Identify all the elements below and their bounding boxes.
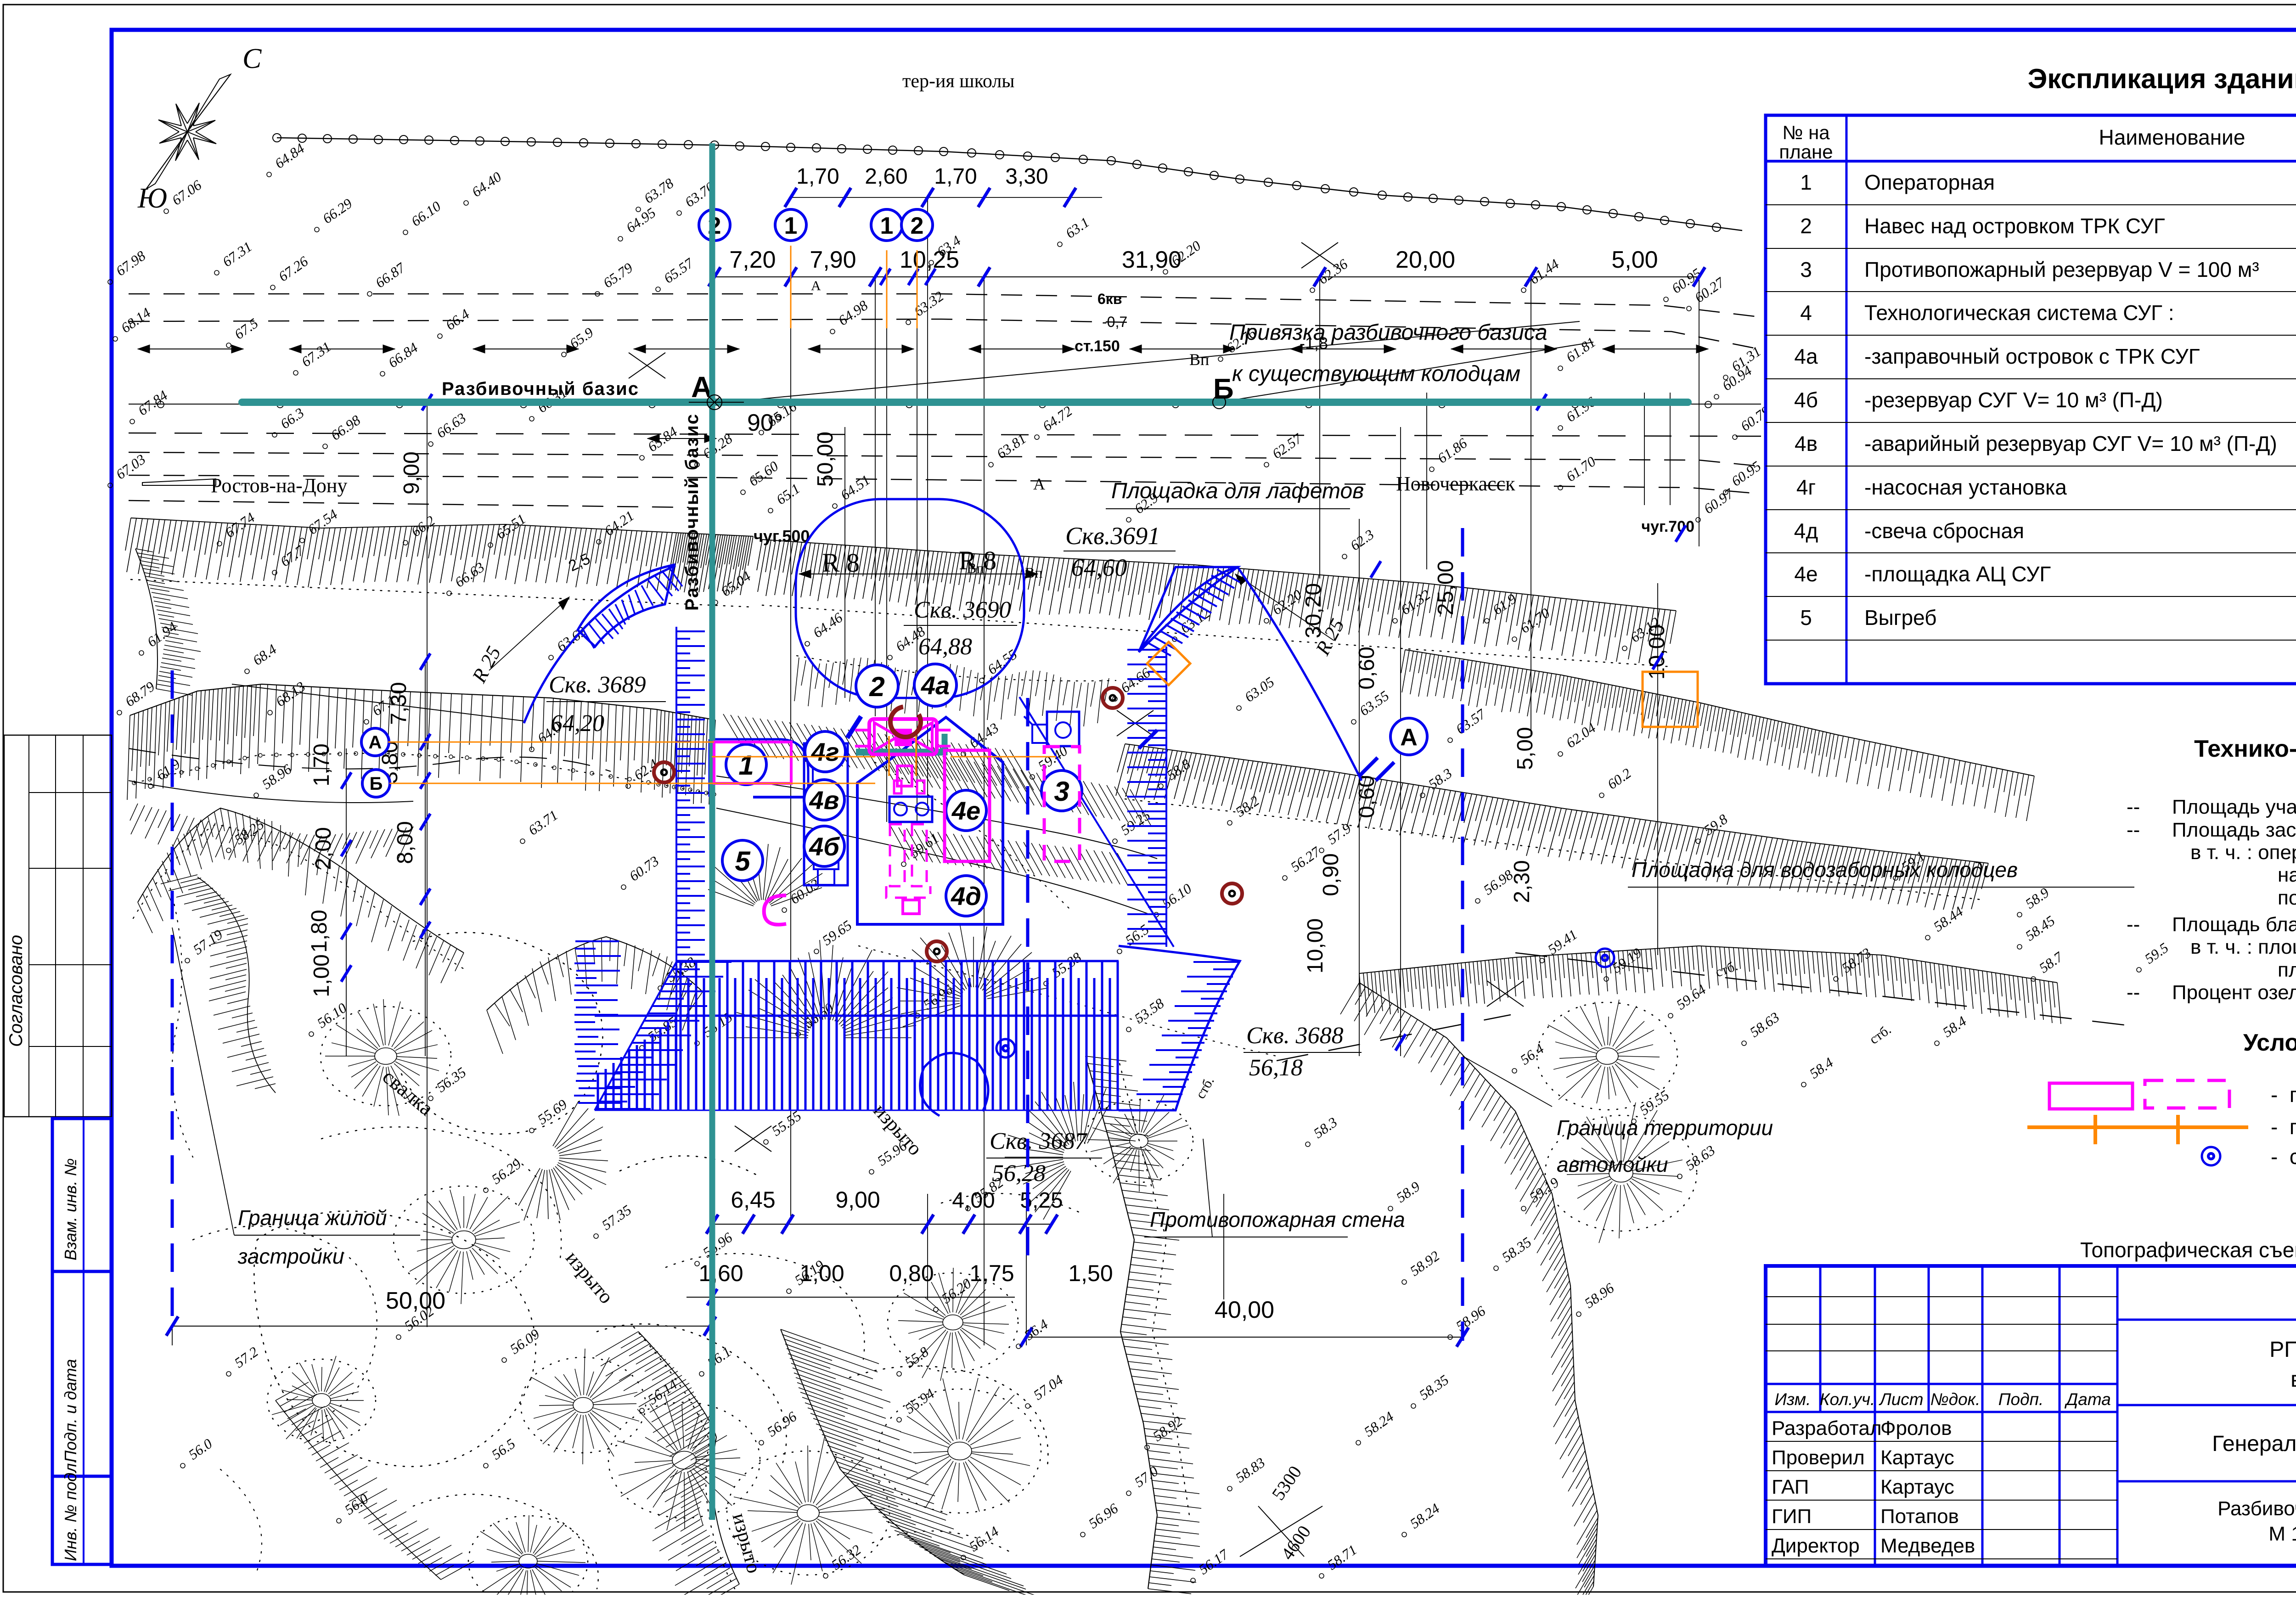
svg-text:4а: 4а: [1794, 344, 1818, 368]
svg-text:0,60: 0,60: [1355, 775, 1379, 818]
svg-text:Медведев: Медведев: [1880, 1535, 1975, 1557]
svg-text:Операторная: Операторная: [1864, 170, 1995, 194]
svg-text:6кв: 6кв: [1097, 291, 1122, 307]
svg-text:4а: 4а: [921, 671, 950, 700]
svg-text:Б: Б: [370, 774, 383, 794]
svg-text:Разбивочный план.: Разбивочный план.: [2217, 1497, 2296, 1520]
svg-text:5: 5: [735, 846, 751, 877]
svg-text:Разработал: Разработал: [1772, 1417, 1882, 1440]
svg-text:Навес над островком ТРК СУГ: Навес над островком ТРК СУГ: [1864, 214, 2165, 238]
svg-text:плане: плане: [1779, 141, 1833, 163]
svg-text:2,00: 2,00: [311, 827, 336, 870]
svg-text:№ на: № на: [1782, 122, 1830, 143]
svg-text:-площадка АЦ СУГ: -площадка АЦ СУГ: [1864, 562, 2051, 586]
svg-text:0,90: 0,90: [1319, 853, 1343, 896]
svg-text:--: --: [2127, 981, 2140, 1004]
svg-text:Скв. 3689: Скв. 3689: [549, 672, 646, 698]
svg-text:9,00: 9,00: [835, 1187, 880, 1213]
svg-text:0,60: 0,60: [1355, 647, 1379, 689]
svg-text:Генеральный план: Генеральный план: [2212, 1432, 2296, 1456]
svg-text:тер-ия школы: тер-ия школы: [902, 71, 1015, 92]
svg-text:Вп: Вп: [1025, 564, 1042, 581]
svg-text:навеса: навеса: [2278, 864, 2296, 886]
svg-text:50,00: 50,00: [386, 1288, 445, 1314]
svg-text:Фролов: Фролов: [1880, 1417, 1952, 1440]
svg-text:7,90: 7,90: [810, 247, 856, 273]
svg-text:Картаус: Картаус: [1880, 1446, 1954, 1469]
svg-text:Разбивочный базис: Разбивочный базис: [442, 379, 639, 399]
svg-text:-0,7: -0,7: [1102, 314, 1127, 330]
svg-text:С: С: [242, 43, 262, 74]
svg-text:Привязка разбивочного базиса: Привязка разбивочного базиса: [1229, 321, 1548, 345]
svg-text:подземных сооружений: подземных сооружений: [2278, 887, 2296, 909]
svg-text:--: --: [2127, 819, 2140, 841]
svg-text:4б: 4б: [809, 832, 840, 861]
svg-text:4е: 4е: [951, 796, 980, 825]
svg-text:выезд, 11а в г. Новочеркасске: выезд, 11а в г. Новочеркасске: [2290, 1367, 2296, 1392]
svg-text:4: 4: [1800, 301, 1812, 325]
svg-text:56,18: 56,18: [1249, 1055, 1303, 1081]
svg-text:площадь озеленения: площадь озеленения: [2278, 959, 2296, 981]
svg-text:1,60: 1,60: [698, 1260, 743, 1286]
svg-text:в т. ч. : операторной: в т. ч. : операторной: [2190, 841, 2296, 864]
svg-text:1: 1: [880, 213, 894, 239]
svg-text:Ю: Ю: [137, 183, 167, 214]
svg-text:Потапов: Потапов: [1880, 1505, 1959, 1528]
svg-text:РП АГЗС в районе ул. Ростовски: РП АГЗС в районе ул. Ростовский: [2269, 1338, 2296, 1362]
svg-text:2,60: 2,60: [865, 164, 907, 189]
svg-text:-аварийный резервуар СУГ V= 10: -аварийный резервуар СУГ V= 10 м³ (П-Д): [1864, 432, 2277, 455]
svg-text:Ростов-на-Дону: Ростов-на-Дону: [211, 474, 347, 497]
svg-text:-свеча сбросная: -свеча сбросная: [1864, 519, 2024, 543]
svg-text:Директор: Директор: [1772, 1535, 1860, 1557]
svg-text:25,00: 25,00: [1434, 560, 1458, 615]
svg-text:3,30: 3,30: [1005, 164, 1048, 189]
svg-text:64,88: 64,88: [918, 634, 972, 660]
svg-text:А: А: [1400, 724, 1418, 751]
svg-text:Подп.: Подп.: [1998, 1390, 2043, 1409]
svg-text:-резервуар СУГ V= 10 м³ (П-Д): -резервуар СУГ V= 10 м³ (П-Д): [1864, 388, 2163, 412]
svg-text:1,70: 1,70: [310, 743, 334, 786]
svg-text:к существующим колодцам: к существующим колодцам: [1232, 362, 1520, 386]
svg-text:А: А: [369, 732, 382, 753]
svg-text:40,00: 40,00: [1215, 1297, 1274, 1323]
svg-text:4д: 4д: [951, 882, 981, 911]
svg-text:8,00: 8,00: [393, 821, 417, 864]
svg-text:20,00: 20,00: [1396, 247, 1455, 273]
svg-text:5,00: 5,00: [1611, 247, 1658, 273]
svg-text:А: А: [811, 278, 821, 293]
svg-text:1,00: 1,00: [310, 954, 334, 997]
svg-text:1,70: 1,70: [934, 164, 977, 189]
svg-text:7,20: 7,20: [729, 247, 776, 273]
svg-text:3: 3: [1800, 258, 1812, 281]
svg-text:6,45: 6,45: [731, 1187, 775, 1213]
svg-text:Площадь благоустройства: Площадь благоустройства: [2172, 913, 2296, 936]
svg-text:Взам. инв. №: Взам. инв. №: [61, 1158, 80, 1260]
svg-text:Процент озеленения: Процент озеленения: [2172, 981, 2296, 1004]
svg-text:2: 2: [1800, 214, 1812, 238]
svg-text:-насосная установка: -насосная установка: [1864, 475, 2067, 499]
svg-text:Технологическая система СУГ :: Технологическая система СУГ :: [1864, 301, 2174, 325]
svg-text:--: --: [2127, 796, 2140, 818]
svg-text:1: 1: [1800, 170, 1812, 194]
svg-text:Вп: Вп: [1189, 350, 1209, 369]
svg-text:4б: 4б: [1794, 388, 1818, 412]
svg-text:Наименование: Наименование: [2099, 125, 2245, 149]
svg-text:Новочеркасск: Новочеркасск: [1396, 472, 1515, 495]
svg-text:М 1:500.: М 1:500.: [2268, 1523, 2296, 1545]
svg-text:в т. ч. : площадь покрытий: в т. ч. : площадь покрытий: [2190, 936, 2296, 958]
svg-text:Скв. 3688: Скв. 3688: [1246, 1023, 1344, 1049]
svg-text:4г: 4г: [810, 737, 839, 766]
svg-text:Проверил: Проверил: [1772, 1446, 1865, 1469]
svg-text:9,00: 9,00: [400, 451, 424, 494]
svg-text:1: 1: [738, 750, 754, 781]
svg-text:-1,8: -1,8: [1300, 334, 1328, 353]
svg-text:R 8: R 8: [822, 548, 860, 578]
svg-text:Граница территории: Граница территории: [1557, 1116, 1773, 1140]
svg-text:50,00: 50,00: [813, 432, 838, 487]
svg-text:Скв.3691: Скв.3691: [1065, 522, 1160, 550]
svg-text:Площадь застройки: Площадь застройки: [2172, 819, 2296, 841]
svg-text:Кол.уч.: Кол.уч.: [1820, 1390, 1875, 1409]
svg-text:Картаус: Картаус: [1880, 1476, 1954, 1498]
svg-text:ГАП: ГАП: [1772, 1476, 1809, 1498]
svg-text:- граница участка: - граница участка: [2271, 1115, 2296, 1139]
svg-text:Лист: Лист: [1879, 1390, 1923, 1409]
svg-text:Подп. и дата: Подп. и дата: [61, 1359, 80, 1462]
svg-text:5: 5: [1800, 606, 1812, 630]
svg-text:5,00: 5,00: [1513, 727, 1537, 770]
svg-text:- скважины инженерно-геологич: - скважины инженерно-геологических изыск…: [2271, 1145, 2296, 1169]
svg-text:1,80: 1,80: [307, 910, 332, 952]
svg-text:чуг.500: чуг.500: [754, 527, 810, 545]
svg-text:10,00: 10,00: [1303, 918, 1328, 973]
svg-text:1,70: 1,70: [796, 164, 839, 189]
svg-text:2,30: 2,30: [1510, 860, 1534, 903]
svg-text:2: 2: [869, 671, 884, 702]
svg-text:ст.150: ст.150: [1075, 337, 1120, 355]
svg-text:№док.: №док.: [1930, 1390, 1981, 1409]
svg-text:Технико-экономические показате: Технико-экономические показатели: [2194, 736, 2296, 762]
svg-text:3: 3: [1054, 776, 1069, 807]
svg-text:--: --: [2127, 913, 2140, 936]
svg-text:А: А: [1033, 475, 1045, 493]
svg-text:4в: 4в: [1795, 432, 1818, 455]
svg-text:Выгреб: Выгреб: [1864, 606, 1937, 630]
svg-text:Топографическая съемка выполне: Топографическая съемка выполнена ООО "До…: [2080, 1238, 2296, 1262]
svg-text:автомойки: автомойки: [1557, 1153, 1668, 1176]
svg-text:Скв. 3690: Скв. 3690: [914, 597, 1011, 623]
svg-text:4д: 4д: [1794, 519, 1818, 543]
svg-text:Экспликация зданий и сооружени: Экспликация зданий и сооружений: [2028, 63, 2296, 94]
svg-text:Условные обозначения: Условные обозначения: [2243, 1029, 2296, 1056]
svg-text:Площадь участка: Площадь участка: [2172, 796, 2296, 818]
svg-text:застройки: застройки: [237, 1244, 344, 1268]
svg-text:Инв. № подл.: Инв. № подл.: [61, 1459, 80, 1561]
svg-text:Противопожарный резервуар V =: Противопожарный резервуар V = 100 м³: [1864, 258, 2259, 281]
svg-text:2: 2: [911, 213, 924, 239]
svg-text:64,60: 64,60: [1071, 554, 1127, 581]
svg-text:4г: 4г: [1796, 475, 1816, 499]
svg-text:Площадка для водозаборных коло: Площадка для водозаборных колодцев: [1632, 858, 2018, 882]
svg-text:-заправочный островок с ТРК СУ: -заправочный островок с ТРК СУГ: [1864, 344, 2200, 368]
svg-text:Противопожарная стена: Противопожарная стена: [1150, 1208, 1405, 1231]
svg-text:4е: 4е: [1794, 562, 1818, 586]
svg-text:- проектируемые здания и соор: - проектируемые здания и сооружения: [2271, 1083, 2296, 1107]
svg-text:Изм.: Изм.: [1775, 1390, 1811, 1409]
svg-text:4в: 4в: [809, 786, 839, 815]
svg-text:ГИП: ГИП: [1772, 1505, 1812, 1528]
svg-text:1,50: 1,50: [1068, 1260, 1113, 1286]
svg-text:Вп: Вп: [967, 560, 984, 576]
svg-text:1,75: 1,75: [969, 1260, 1014, 1286]
svg-text:0,80: 0,80: [889, 1260, 934, 1286]
svg-text:1: 1: [784, 213, 798, 239]
svg-text:Дата: Дата: [2064, 1390, 2111, 1409]
svg-text:Разбивочный базис: Разбивочный базис: [682, 413, 702, 611]
svg-text:Согласовано: Согласовано: [6, 935, 26, 1047]
